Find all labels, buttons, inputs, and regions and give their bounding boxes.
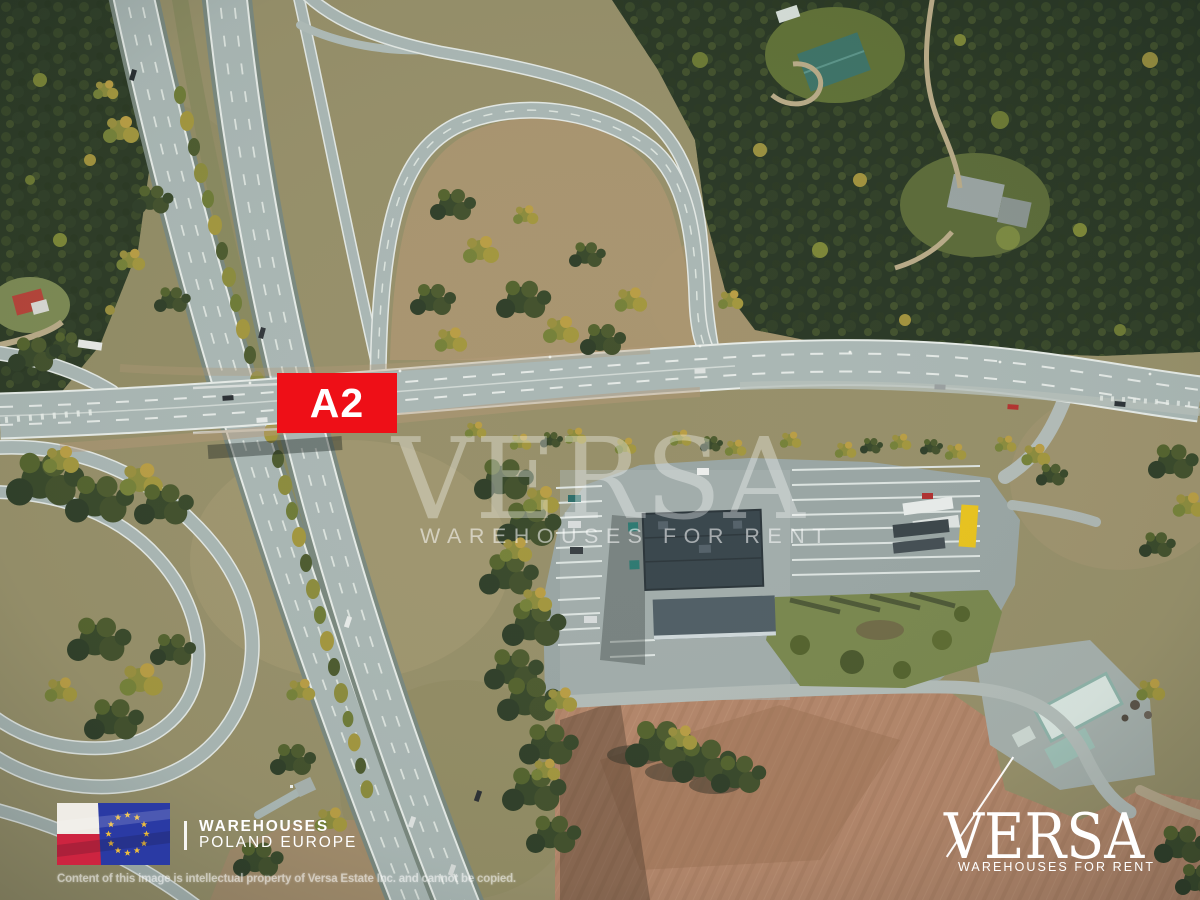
center-watermark-tagline: WAREHOUSES FOR RENT [420,524,833,549]
a2-route-badge: A2 [277,373,397,433]
brand-logo-wordmark: VERSA [944,805,1144,868]
flag-separator [184,821,187,850]
copyright-notice: Content of this image is intellectual pr… [57,873,516,885]
footer-flags [57,803,170,865]
brand-logo-tagline: WAREHOUSES FOR RENT [958,860,1155,874]
aerial-photo-stage: A2 VERSA WAREHOUSES FOR RENT WAREHOUSES … [0,0,1200,900]
center-watermark-brand: VERSA [392,424,807,536]
footer-caption-line2: POLAND EUROPE [199,834,357,852]
a2-badge-label: A2 [310,380,364,427]
